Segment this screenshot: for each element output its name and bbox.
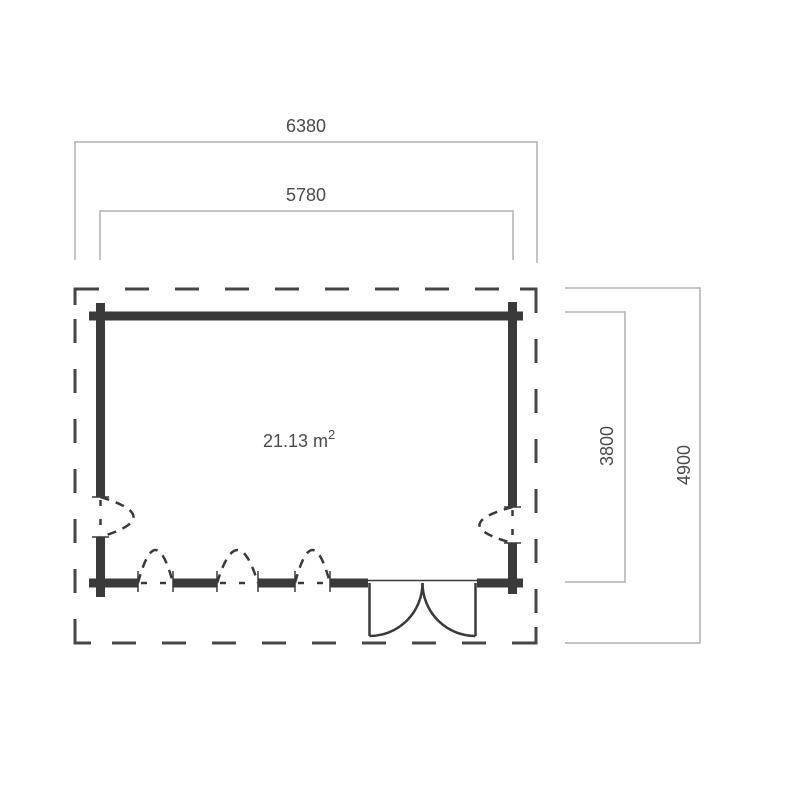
window-jambs [92,497,521,592]
wall-top [89,312,523,321]
wall-right-upper [508,302,517,507]
floor-plan: 6380 5780 3800 4900 [0,0,790,790]
wall-left-upper [96,303,105,497]
window-swings [101,497,513,583]
dimension-brackets [75,142,700,643]
dimension-labels: 6380 5780 3800 4900 [286,116,694,485]
wall-bottom-seg-1 [89,579,138,588]
roof-outline [75,289,536,643]
door-swing-right [423,583,476,636]
area-exponent: 2 [328,427,335,442]
window-swing-right [480,507,513,543]
floor-plan-canvas: 6380 5780 3800 4900 [0,0,790,790]
window-swing-left [101,497,134,537]
dim-label-outer-depth: 4900 [674,445,694,485]
area-label: 21.13 m2 [263,427,335,451]
window-sills [101,500,513,583]
door-swing-left [370,583,423,636]
dim-label-inner-width: 5780 [286,185,326,205]
wall-bottom-seg-3 [258,579,295,588]
dim-bracket-inner-width [100,211,513,260]
roof-outline-corner-tr [520,289,536,305]
roof-outline-corner-tl [75,289,91,305]
wall-bottom-seg-5 [477,579,523,588]
window-swing-bottom-1 [138,550,173,583]
dim-label-inner-depth: 3800 [597,426,617,466]
wall-bottom-seg-2 [173,579,217,588]
window-swing-bottom-2 [217,550,258,583]
area-label-group: 21.13 m2 [263,427,335,451]
window-swing-bottom-3 [295,550,330,583]
dim-label-outer-width: 6380 [286,116,326,136]
wall-bottom-seg-4 [330,579,368,588]
wall-left-lower [96,537,105,597]
area-value: 21.13 m [263,431,328,451]
roof-outline-corner-bl [75,627,91,643]
roof-outline-corner-br [520,627,536,643]
double-door [368,581,477,637]
